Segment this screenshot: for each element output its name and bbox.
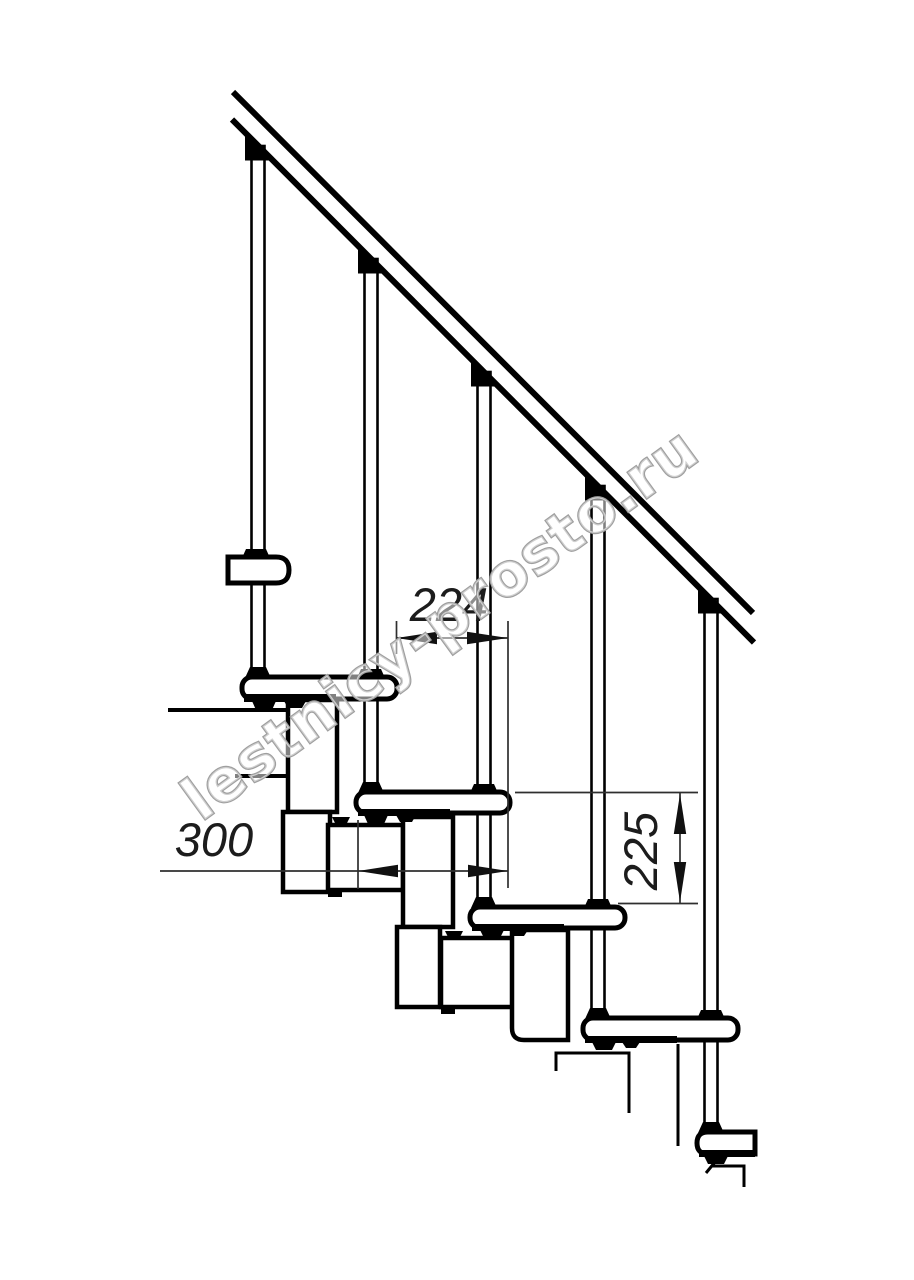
module-column <box>403 817 453 927</box>
baluster-pipe <box>252 146 265 677</box>
arrowhead <box>674 794 686 834</box>
baluster-pipe <box>592 486 605 1018</box>
tread-broken-left <box>228 557 289 583</box>
staircase-drawing: 224 300 225 lestnicy-prosto.ru <box>0 0 914 1280</box>
module-column <box>512 930 568 1040</box>
module-column <box>397 927 440 1007</box>
baluster-pipe <box>705 599 718 1132</box>
dimension-rise: 225 <box>515 793 698 904</box>
module-square <box>328 825 403 890</box>
module-square <box>441 938 518 1007</box>
module-column <box>283 812 330 892</box>
staircase-drawing-canvas: 224 300 225 lestnicy-prosto.ru <box>0 0 914 1280</box>
dimension-label-rise: 225 <box>614 811 667 891</box>
arrowhead <box>674 862 686 902</box>
